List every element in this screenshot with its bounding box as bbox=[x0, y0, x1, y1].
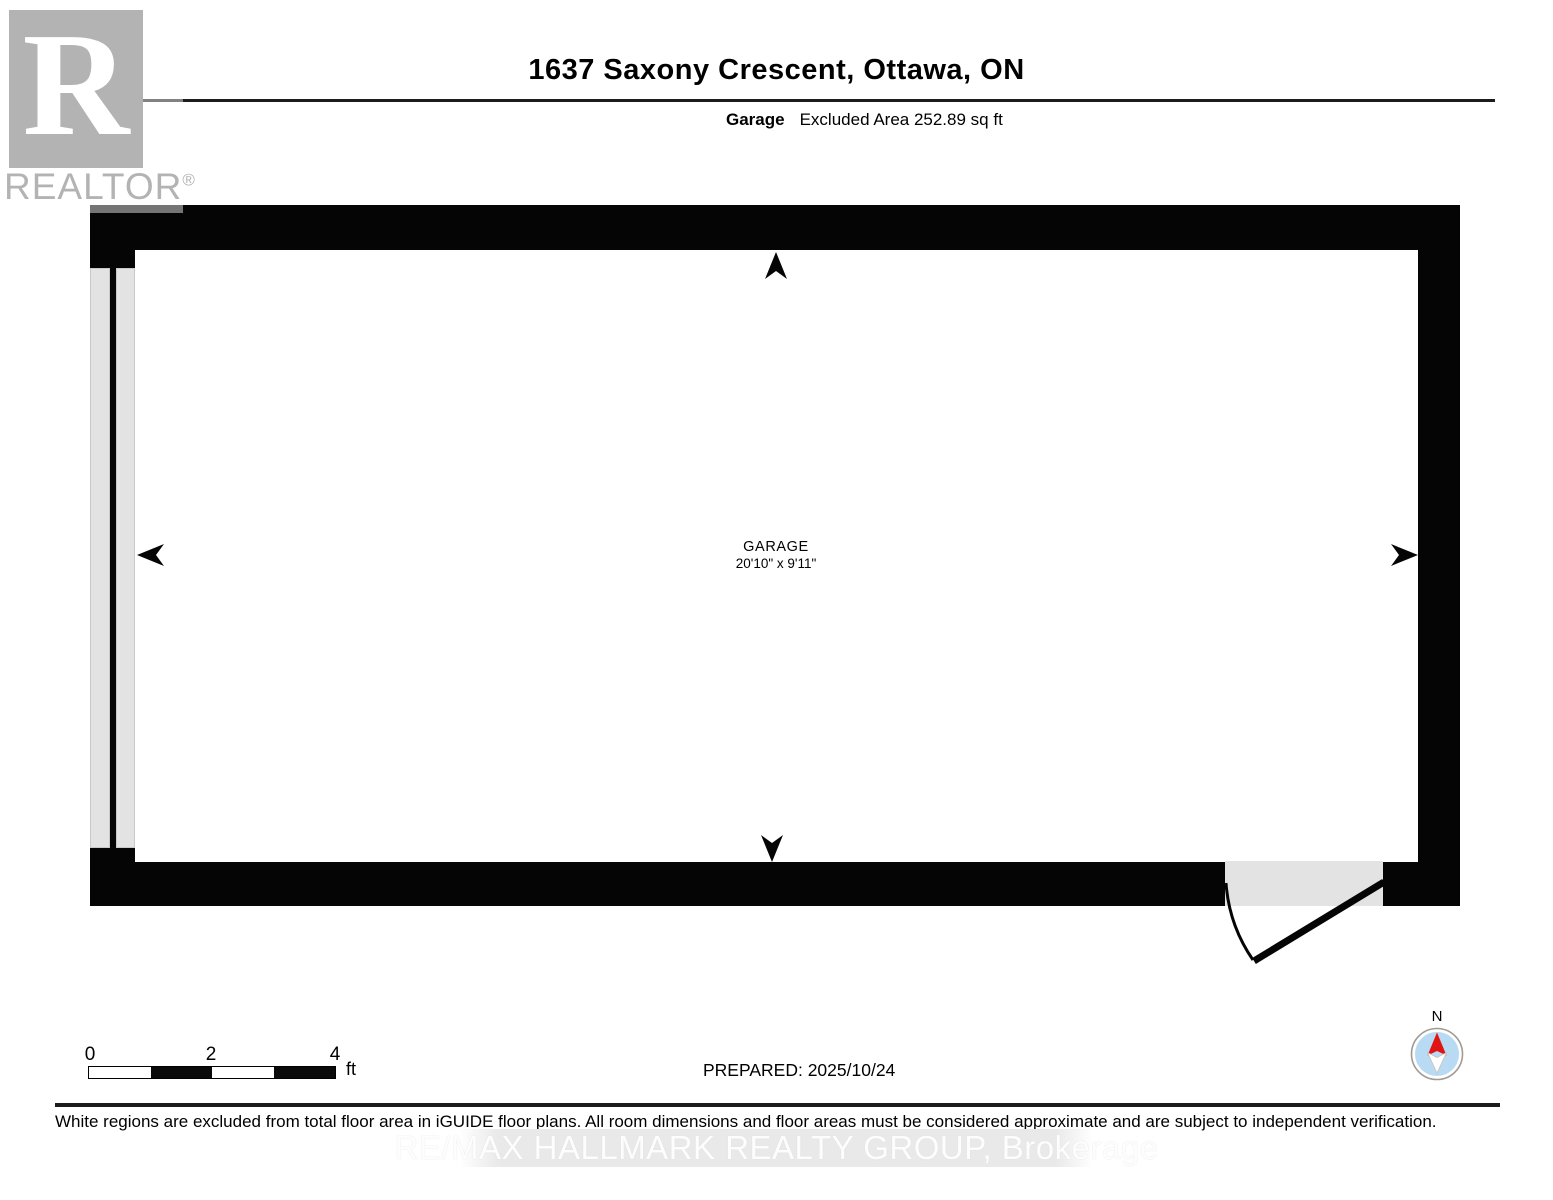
footer-divider bbox=[55, 1103, 1500, 1107]
realtor-watermark: R REALTOR® bbox=[0, 0, 183, 213]
garage-door-outer-panel bbox=[90, 268, 110, 848]
realtor-wordmark: REALTOR bbox=[4, 166, 182, 207]
floor-area-text: Excluded Area 252.89 sq ft bbox=[800, 110, 1003, 130]
compass-north-label: N bbox=[1410, 1008, 1464, 1025]
scale-segment bbox=[151, 1067, 213, 1078]
scale-tick-0: 0 bbox=[85, 1044, 96, 1066]
room-name: GARAGE bbox=[736, 539, 817, 555]
scale-segment bbox=[274, 1067, 336, 1078]
wall-top bbox=[90, 205, 1460, 250]
room-dimensions: 20'10" x 9'11" bbox=[736, 556, 817, 571]
garage-door-inner-panel bbox=[116, 268, 135, 848]
registered-trademark-symbol: ® bbox=[182, 171, 196, 190]
scale-segment bbox=[89, 1067, 151, 1078]
door-opening bbox=[1225, 861, 1383, 906]
floor-label: Garage bbox=[726, 110, 785, 130]
compass: N bbox=[1410, 1008, 1464, 1086]
page-title: 1637 Saxony Crescent, Ottawa, ON bbox=[0, 54, 1553, 87]
brokerage-watermark-text: RE/MAX HALLMARK REALTY GROUP, Brokerage bbox=[394, 1129, 1158, 1167]
scale-tick-2: 2 bbox=[206, 1044, 217, 1066]
realtor-logo-icon: R bbox=[9, 10, 143, 168]
wall-left-lower bbox=[90, 848, 135, 906]
realtor-logo-letter: R bbox=[23, 11, 130, 159]
wall-right bbox=[1418, 205, 1460, 906]
scale-unit-label: ft bbox=[346, 1059, 356, 1080]
floor-summary: Garage Excluded Area 252.89 sq ft bbox=[726, 110, 1003, 130]
title-divider bbox=[45, 99, 1495, 102]
direction-arrow-left-icon bbox=[137, 544, 164, 566]
floorplan-page: 1637 Saxony Crescent, Ottawa, ON Garage … bbox=[0, 0, 1553, 1200]
scale-segment bbox=[212, 1067, 274, 1078]
realtor-logo-text: REALTOR® bbox=[4, 166, 182, 208]
plan-overlay bbox=[0, 0, 1553, 1200]
direction-arrow-down-icon bbox=[761, 835, 783, 862]
prepared-date: PREPARED: 2025/10/24 bbox=[703, 1060, 895, 1081]
compass-icon bbox=[1410, 1027, 1464, 1081]
direction-arrow-right-icon bbox=[1391, 544, 1418, 566]
brokerage-watermark: RE/MAX HALLMARK REALTY GROUP, Brokerage bbox=[460, 1129, 1093, 1167]
wall-left-upper bbox=[90, 205, 135, 268]
scale-bar bbox=[88, 1066, 336, 1079]
room-label: GARAGE 20'10" x 9'11" bbox=[736, 539, 817, 571]
direction-arrow-up-icon bbox=[765, 252, 787, 279]
scale-tick-4: 4 bbox=[330, 1044, 341, 1066]
